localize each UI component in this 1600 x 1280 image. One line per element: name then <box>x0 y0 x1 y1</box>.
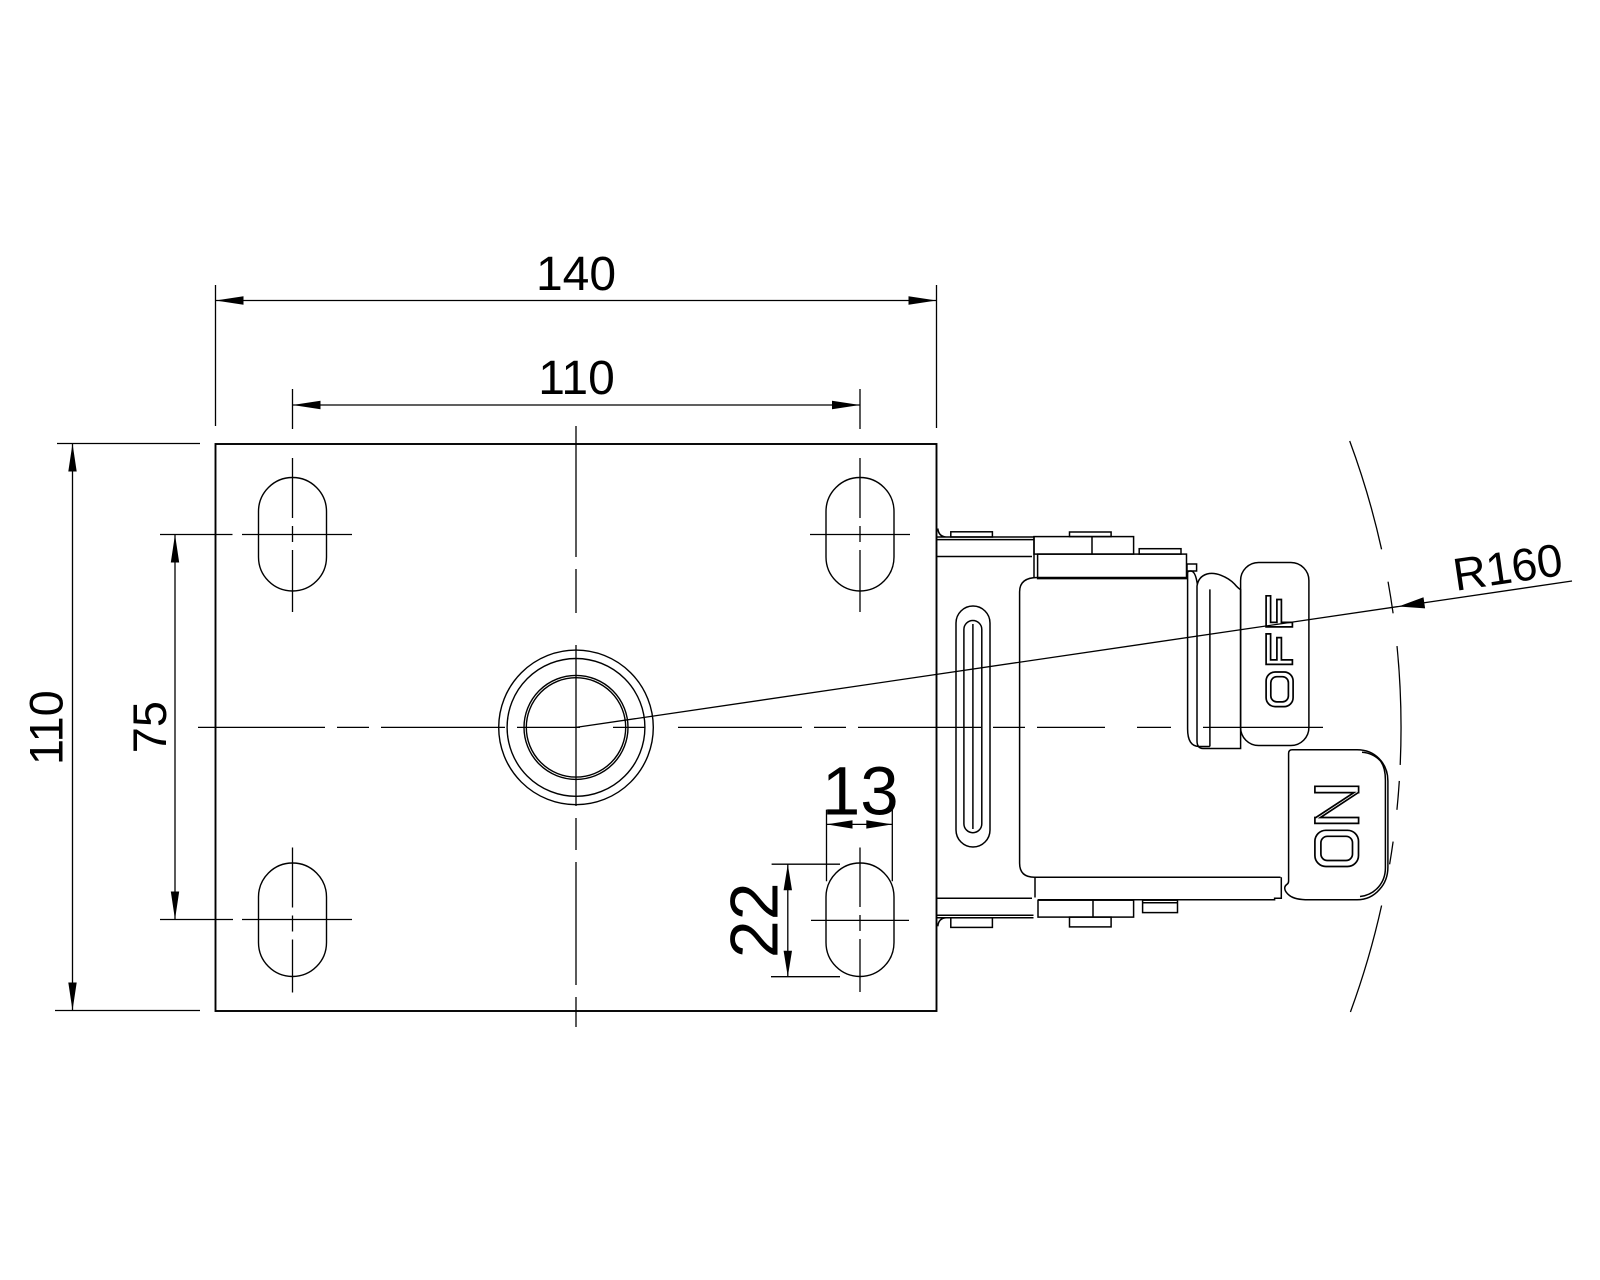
svg-text:110: 110 <box>20 690 73 765</box>
svg-text:140: 140 <box>536 248 616 301</box>
svg-text:22: 22 <box>717 882 793 958</box>
svg-text:13: 13 <box>822 753 899 830</box>
svg-text:75: 75 <box>123 701 176 753</box>
svg-text:110: 110 <box>538 352 615 405</box>
